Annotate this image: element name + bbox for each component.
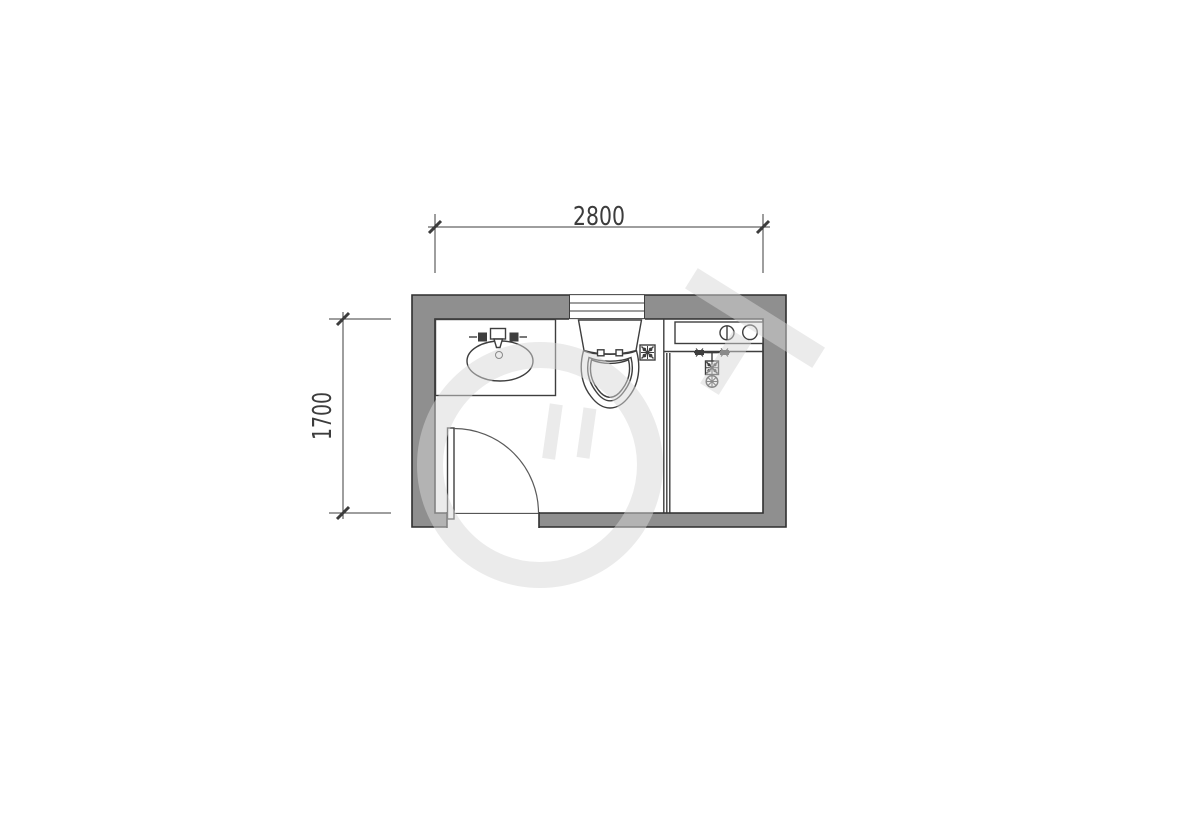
window-opening (569, 293, 645, 321)
floor-plan-canvas: 2800 1700 (0, 0, 1198, 831)
dimension-height-label: 1700 (308, 392, 338, 440)
toilet-tank (579, 320, 642, 354)
bathroom-floor-plan: 2800 1700 (0, 0, 1198, 831)
floor-drain-icon (640, 345, 655, 360)
door-swing-arc (454, 429, 539, 514)
watermark-bar (542, 403, 563, 459)
faucet-handle (510, 333, 519, 342)
door-swing-icon (447, 428, 539, 529)
dimension-width: 2800 (428, 202, 770, 273)
watermark-bar (577, 407, 597, 458)
toilet-hinge (598, 350, 605, 356)
faucet-handle (478, 333, 487, 342)
dimension-height: 1700 (308, 312, 391, 519)
mixer-dot (707, 363, 710, 366)
floor-drain-dot (643, 348, 647, 352)
toilet-hinge (616, 350, 623, 356)
dimension-width-label: 2800 (573, 202, 625, 232)
floor-drain-dot (649, 348, 653, 352)
floor-drain-dot (649, 354, 653, 358)
faucet-body (491, 329, 506, 340)
floor-drain-dot (643, 354, 647, 358)
glass-partition-icon (664, 319, 763, 513)
window-icon (569, 293, 645, 321)
